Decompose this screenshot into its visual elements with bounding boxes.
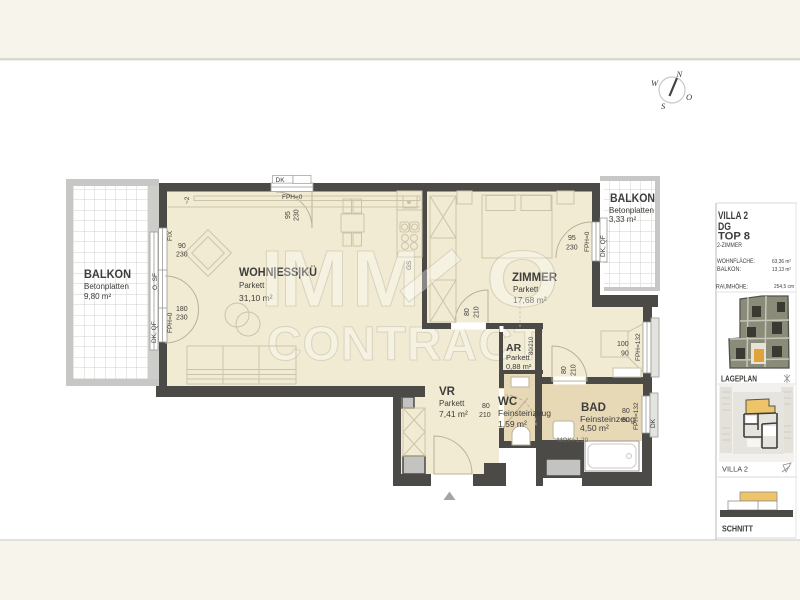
svg-text:VR: VR: [439, 386, 456, 398]
svg-text:BALKON: BALKON: [610, 191, 655, 205]
svg-text:SCHNITT: SCHNITT: [722, 525, 753, 534]
svg-text:BALKON: BALKON: [84, 267, 131, 281]
svg-text:90: 90: [178, 243, 186, 250]
svg-text:DK: DK: [650, 418, 657, 428]
svg-text:Betonplatten: Betonplatten: [609, 206, 654, 215]
svg-text:Parkett: Parkett: [506, 353, 531, 362]
svg-text:TOP 8: TOP 8: [718, 231, 750, 243]
svg-text:DK: DK: [276, 177, 286, 184]
svg-text:BAD: BAD: [581, 402, 606, 414]
svg-text:80: 80: [622, 408, 630, 415]
svg-text:3,33 m²: 3,33 m²: [609, 215, 636, 224]
svg-text:80/210: 80/210: [529, 336, 535, 355]
svg-text:WOHNFLÄCHE:: WOHNFLÄCHE:: [717, 258, 755, 265]
svg-text:230: 230: [566, 245, 578, 252]
svg-text:2-ZIMMER: 2-ZIMMER: [717, 243, 743, 249]
svg-text:VILLA 2: VILLA 2: [722, 465, 748, 474]
svg-text:90: 90: [621, 351, 629, 358]
svg-text:80: 80: [561, 366, 568, 374]
svg-text:210: 210: [474, 306, 481, 318]
svg-text:LAGEPLAN: LAGEPLAN: [721, 375, 757, 384]
svg-text:~2: ~2: [184, 196, 191, 204]
svg-text:FPH=132: FPH=132: [635, 333, 642, 361]
svg-text:0,88 m²: 0,88 m²: [506, 362, 532, 371]
svg-text:254,5 cm: 254,5 cm: [774, 284, 794, 290]
svg-text:210: 210: [479, 412, 491, 419]
svg-text:13,13 m²: 13,13 m²: [772, 267, 791, 273]
svg-text:210: 210: [571, 364, 578, 376]
svg-text:Betonplatten: Betonplatten: [84, 282, 129, 291]
svg-text:FPH=0: FPH=0: [584, 231, 591, 252]
svg-text:230: 230: [176, 315, 188, 322]
svg-text:FPH=0: FPH=0: [282, 194, 303, 201]
svg-text:Parkett: Parkett: [439, 399, 465, 408]
svg-text:BALKON:: BALKON:: [717, 266, 741, 273]
svg-text:60: 60: [622, 417, 630, 424]
svg-text:230: 230: [294, 209, 301, 221]
svg-text:1,59 m²: 1,59 m²: [498, 419, 527, 429]
svg-text:FPH=0: FPH=0: [167, 312, 174, 333]
svg-text:100: 100: [617, 341, 629, 348]
svg-text:4,50 m²: 4,50 m²: [580, 423, 609, 433]
svg-text:80: 80: [464, 308, 471, 316]
svg-text:MOK=1,20: MOK=1,20: [557, 437, 589, 444]
svg-text:M: M: [352, 234, 420, 323]
svg-text:95: 95: [568, 235, 576, 242]
svg-text:W: W: [651, 78, 659, 88]
svg-text:DK, QF: DK, QF: [600, 235, 607, 257]
svg-text:63,36 m²: 63,36 m²: [772, 259, 791, 265]
svg-text:80: 80: [482, 403, 490, 410]
svg-text:180: 180: [176, 306, 188, 313]
svg-text:FPH=132: FPH=132: [633, 402, 640, 430]
svg-text:Feinsteinzeug: Feinsteinzeug: [498, 409, 551, 418]
svg-text:95: 95: [285, 211, 292, 219]
svg-text:RAUMHÖHE:: RAUMHÖHE:: [716, 284, 748, 291]
svg-text:WC: WC: [498, 396, 517, 408]
svg-text:9,80 m²: 9,80 m²: [84, 292, 111, 301]
svg-text:M: M: [280, 234, 348, 323]
svg-text:O: O: [486, 234, 559, 323]
svg-text:FIX: FIX: [167, 230, 174, 241]
svg-text:O. SF: O. SF: [152, 273, 159, 290]
svg-text:O: O: [686, 92, 692, 102]
svg-text:7,41 m²: 7,41 m²: [439, 409, 468, 419]
svg-text:DK, QF: DK, QF: [151, 321, 158, 343]
svg-text:230: 230: [176, 252, 188, 259]
